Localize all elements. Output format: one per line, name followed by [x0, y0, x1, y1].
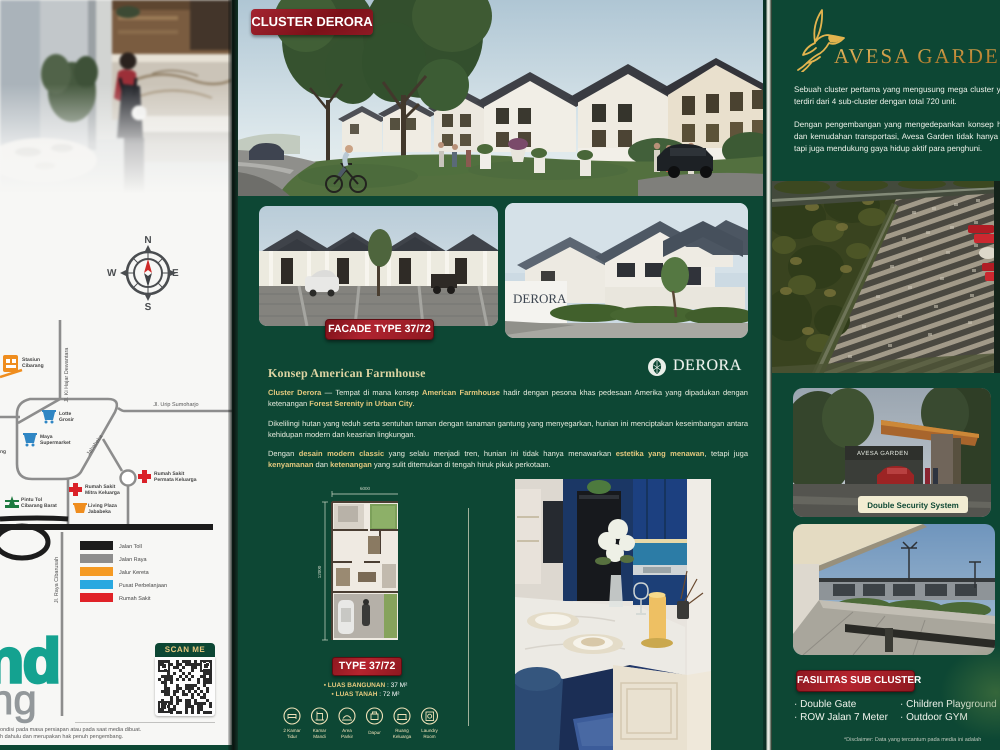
svg-text:Jl. Raya Cibarusah: Jl. Raya Cibarusah	[54, 557, 60, 603]
svg-text:Dapur: Dapur	[368, 730, 381, 735]
svg-text:Keluarga: Keluarga	[393, 734, 412, 739]
svg-text:2 Kamar: 2 Kamar	[283, 728, 301, 733]
svg-text:Room: Room	[423, 734, 435, 739]
svg-text:Jababeka: Jababeka	[86, 433, 105, 457]
svg-text:Jalan Toll: Jalan Toll	[119, 544, 142, 550]
svg-text:Jalur Kereta: Jalur Kereta	[119, 570, 150, 576]
svg-text:DERORA: DERORA	[513, 291, 567, 306]
svg-text:Cibarang Barat: Cibarang Barat	[21, 503, 57, 509]
svg-text:Kamar: Kamar	[313, 728, 327, 733]
svg-text:6000: 6000	[360, 486, 371, 491]
svg-text:Rumah Sakit: Rumah Sakit	[119, 596, 151, 602]
svg-text:Cibarang: Cibarang	[22, 363, 44, 369]
svg-text:Mandi: Mandi	[313, 734, 326, 739]
svg-text:Grosir: Grosir	[59, 417, 74, 423]
svg-text:Supermarket: Supermarket	[40, 440, 71, 446]
svg-text:12000: 12000	[318, 565, 322, 578]
svg-text:Jl. Ki Hajar Dewantara: Jl. Ki Hajar Dewantara	[64, 347, 70, 403]
svg-text:AVESA GARDEN: AVESA GARDEN	[857, 450, 908, 457]
svg-text:S: S	[145, 302, 152, 311]
svg-text:Jalan Raya: Jalan Raya	[119, 557, 147, 563]
svg-text:Permata Keluarga: Permata Keluarga	[154, 477, 197, 483]
svg-text:Ruang: Ruang	[395, 728, 409, 733]
svg-text:Laundry: Laundry	[421, 728, 438, 733]
svg-text:Mitra Keluarga: Mitra Keluarga	[85, 490, 120, 496]
svg-text:N: N	[144, 235, 151, 246]
svg-text:Tidur: Tidur	[287, 734, 298, 739]
svg-text:Double Security System: Double Security System	[867, 501, 959, 510]
svg-text:Jababeka: Jababeka	[88, 509, 111, 515]
svg-text:Jl. Urip Sumoharjo: Jl. Urip Sumoharjo	[153, 402, 198, 408]
svg-text:Parkir: Parkir	[341, 734, 353, 739]
svg-text:Pusat Perbelanjaan: Pusat Perbelanjaan	[119, 583, 167, 589]
svg-text:ng: ng	[0, 449, 6, 455]
svg-text:Area: Area	[342, 728, 352, 733]
